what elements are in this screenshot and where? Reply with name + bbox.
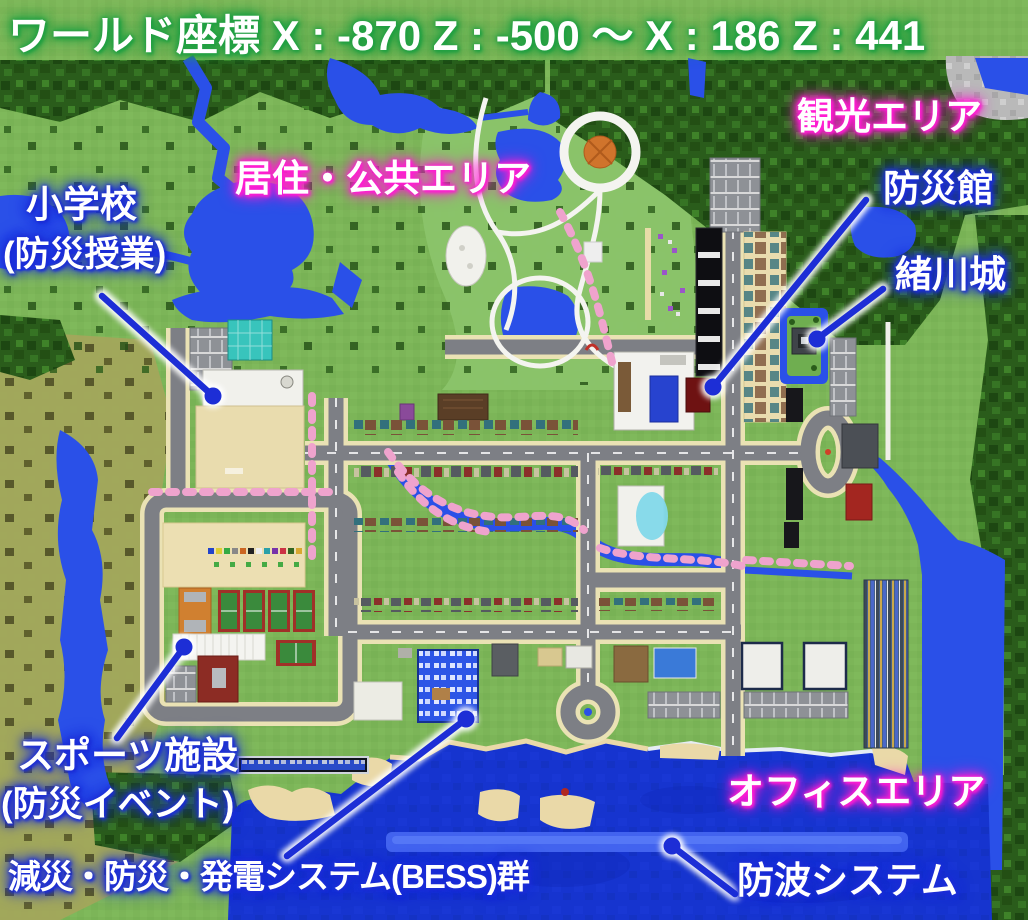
area-label-office: オフィスエリア: [727, 773, 985, 812]
facility-label-breakwater: 防波システム: [737, 862, 958, 901]
facility-label-sports-line1: スポーツ施設: [17, 737, 238, 776]
annotated-world-map: ワールド座標 X : -870 Z : -500 ～ X : 186 Z : 4…: [0, 0, 1028, 920]
area-label-tourism: 観光エリア: [797, 98, 982, 137]
annotation-dot-castle: [809, 331, 826, 348]
wave-pool-building: [618, 486, 668, 546]
sand-island: [478, 789, 520, 821]
annotation-dot-school: [205, 388, 222, 405]
facility-label-disaster-hall: 防災館: [883, 170, 994, 209]
facility-label-school-line1: 小学校: [26, 186, 137, 225]
world-coordinates-title: ワールド座標 X : -870 Z : -500 ～ X : 186 Z : 4…: [8, 14, 925, 58]
dome-building: [446, 226, 486, 286]
facility-label-bess-systems: 減災・防災・発電システム(BESS)群: [8, 860, 529, 895]
facility-label-sports-line2: (防災イベント): [1, 787, 234, 824]
facility-label-school-line2: (防災授業): [3, 237, 166, 274]
office-building-2: [804, 643, 846, 689]
striped-tower: [696, 228, 722, 376]
annotation-dot-disaster-hall: [705, 379, 722, 396]
annotation-dot-breakwater: [664, 838, 681, 855]
facility-label-ogawa-castle: 緒川城: [895, 256, 1006, 295]
annotation-dot-sports: [176, 639, 193, 656]
area-label-residential-public: 居住・公共エリア: [235, 160, 531, 199]
annotation-dot-bess: [458, 711, 475, 728]
office-building-1: [742, 643, 782, 689]
